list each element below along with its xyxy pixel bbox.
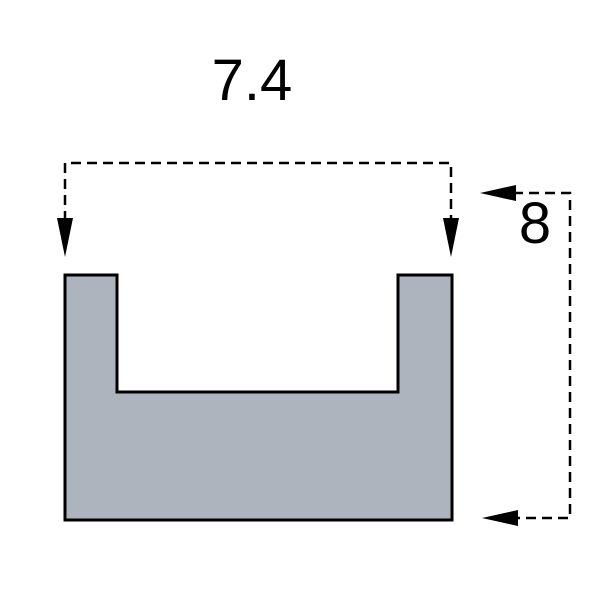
arrow-left-bottom-icon — [482, 510, 518, 526]
drawing-canvas: 7.4 8 — [0, 0, 600, 600]
arrow-down-right-icon — [443, 218, 459, 257]
width-dimension-label: 7.4 — [212, 48, 293, 113]
width-dimension-line — [65, 163, 451, 221]
arrow-left-top-icon — [480, 185, 516, 201]
height-dimension-label: 8 — [519, 191, 551, 256]
technical-drawing: 7.4 8 — [0, 0, 600, 600]
u-channel-profile — [65, 275, 452, 520]
height-dimension: 8 — [480, 185, 570, 526]
width-dimension: 7.4 — [57, 48, 459, 257]
arrow-down-left-icon — [57, 218, 73, 257]
